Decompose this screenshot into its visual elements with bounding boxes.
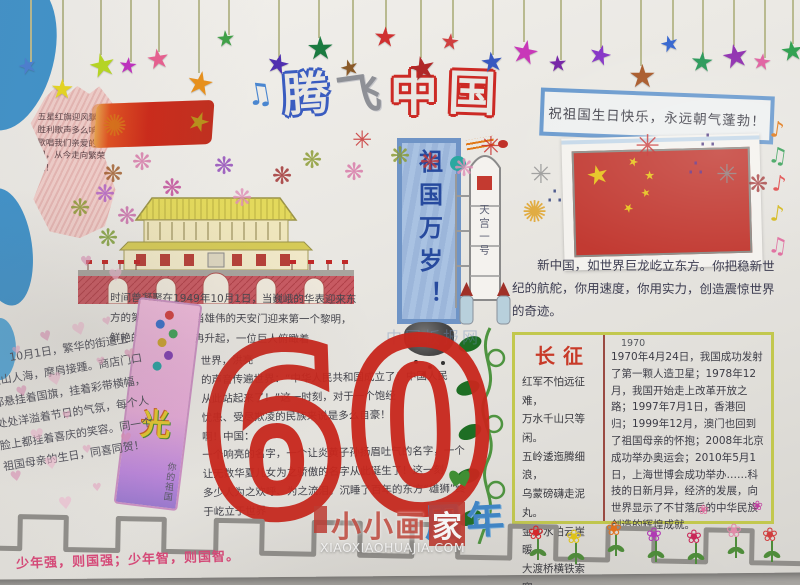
red-flag-decoration: ★ (93, 100, 214, 148)
art-banner-beads (164, 310, 174, 320)
red-blob-decoration (498, 140, 508, 148)
flag-star-icon: ★ (182, 105, 215, 140)
sprout-icon (450, 470, 470, 488)
china-flag-drawing: ★ ★ ★ ★ ★ (572, 147, 753, 258)
title-char-zhong: 中 (390, 70, 438, 118)
changzheng-title: 长征 (517, 340, 601, 369)
flag-big-star-icon: ★ (584, 160, 613, 191)
poster-photo: 五星红旗迎风飘扬，胜利歌声多么响亮；歌唱我们亲爱的祖国，从今走向繁荣富强！ ★ … (0, 0, 800, 585)
title-char-guo: 国 (447, 69, 497, 119)
changzheng-poem-column: 长征 红军不怕远征难， 万水千山只等闲。 五岭逶迤腾细浪， 乌蒙磅礴走泥丸。 金… (515, 335, 605, 521)
left-essay: 10月1日，繁华的街道上人山人海，摩肩接踵。商店门口都悬挂着国旗，挂着彩带横幅，… (0, 327, 157, 478)
watermark-url: XIAOXIAOHUAJIA.COM (320, 540, 465, 555)
flag-small-star-icon: ★ (639, 186, 652, 199)
title-music-note-icon: ♫ (244, 78, 276, 112)
rocket-label: 天宫一号 (477, 204, 492, 280)
greeting-text: 祝祖国生日快乐，永远朝气蓬勃！ (548, 102, 766, 130)
flag-small-star-icon: ★ (621, 200, 636, 216)
motherland-banner-text: 祖国万岁！ (412, 149, 447, 314)
right-essay: 新中国，如世界巨龙屹立东方。你把稳新世纪的航舵，你用速度，你用实力，创造震惊世界… (512, 253, 776, 324)
changzheng-year-note: 1970 (621, 338, 765, 349)
flag-small-star-icon: ★ (626, 154, 640, 169)
watermark-red-block (314, 506, 327, 533)
tiananmen-drawing (78, 192, 354, 304)
changzheng-box: 长征 红军不怕远征难， 万水千山只等闲。 五岭逶迤腾细浪， 乌蒙磅礴走泥丸。 金… (512, 332, 774, 524)
teal-dot-decoration (450, 156, 466, 171)
flag-sheet: ★ ★ ★ ★ ★ (561, 133, 762, 270)
flag-small-star-icon: ★ (644, 169, 655, 181)
changzheng-history-column: 1970 1970年4月24日，我国成功发射了第一颗人造卫星；1978年12月，… (605, 335, 771, 521)
page-title: ♫腾飞中国 (246, 70, 501, 118)
title-char-fei: 飞 (334, 71, 384, 121)
title-char-teng: 腾 (281, 69, 330, 118)
